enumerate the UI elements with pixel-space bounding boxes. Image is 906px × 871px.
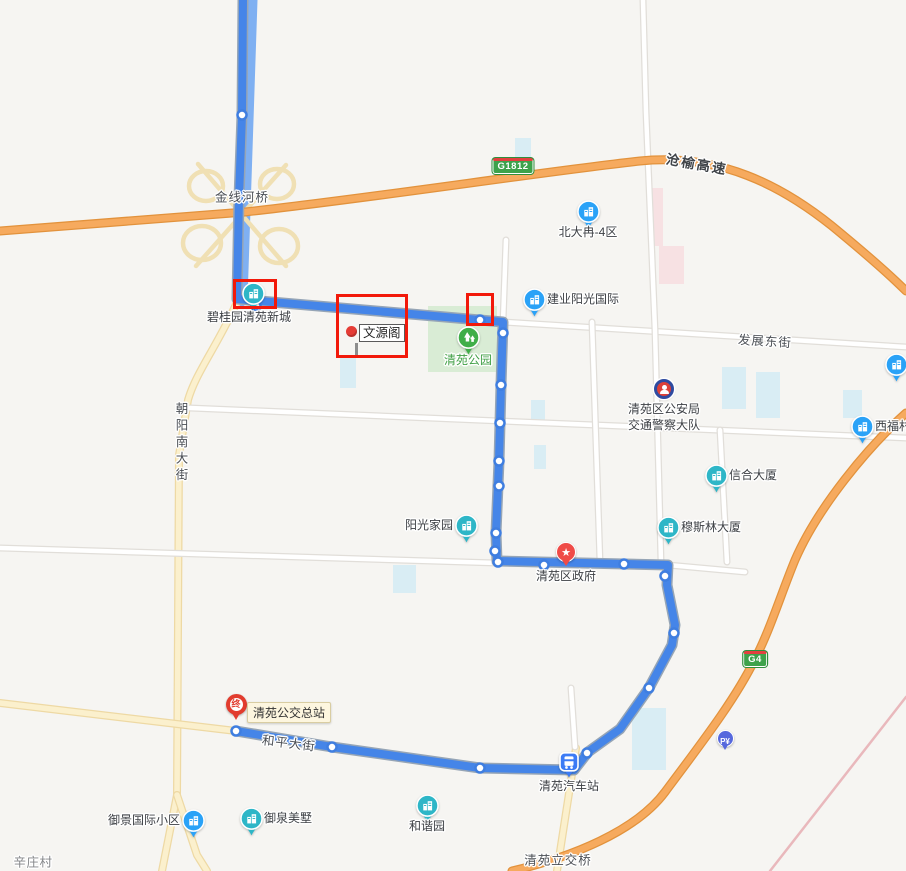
route-stop-dot[interactable] <box>496 419 505 428</box>
tree-pin-icon <box>457 326 480 355</box>
star-pin-icon: ★ <box>556 542 576 562</box>
route-stop-dot[interactable] <box>661 572 670 581</box>
pin-stem <box>355 343 358 355</box>
route-stop-dot[interactable] <box>670 629 679 638</box>
route-stop-dot[interactable] <box>328 743 337 752</box>
poi-label: 穆斯林大厦 <box>681 520 741 535</box>
poi-label: 信合大厦 <box>729 468 777 483</box>
route-stop-dot[interactable] <box>495 482 504 491</box>
route-stop-dot[interactable] <box>645 684 654 693</box>
street-label-chaoyang-south: 朝阳南大街 <box>172 402 191 485</box>
building-pin-icon <box>455 514 478 543</box>
poi-label: 和谐园 <box>409 819 445 834</box>
road-shield-g4: G4 <box>743 651 767 667</box>
water-8 <box>393 565 416 593</box>
water-7 <box>843 390 862 418</box>
water-9 <box>632 708 666 770</box>
water-1 <box>515 138 531 160</box>
cangyu-expressway <box>0 160 906 291</box>
route-stop-dot[interactable] <box>497 381 506 390</box>
route-stop-dot[interactable] <box>499 329 508 338</box>
chaoyang-south-street <box>177 300 238 795</box>
gov-street-west <box>0 548 497 563</box>
route-stop-dot[interactable] <box>232 727 241 736</box>
poi-label-line1: 清苑区公安局 <box>628 401 700 417</box>
railway <box>770 697 906 871</box>
parking-pin-icon: P¥ <box>717 730 734 747</box>
poi-label: 清苑汽车站 <box>539 779 599 794</box>
bus-station-icon <box>558 751 580 778</box>
poi-label: 碧桂园清苑新城 <box>207 310 291 325</box>
middle-road <box>190 408 906 438</box>
water-4 <box>534 445 546 469</box>
terminal-pin-icon: 终 <box>226 694 247 715</box>
poi-label-line2: 交通警察大队 <box>628 417 700 433</box>
street-label-qingyuan-interchange: 清苑立交桥 <box>524 850 592 869</box>
route-stop-dot[interactable] <box>492 529 501 538</box>
street-label-jinxianheqiao: 金线河桥 <box>215 187 269 206</box>
poi-label: 西福村 <box>875 419 906 434</box>
route-stop-dot[interactable] <box>476 316 485 325</box>
map-view: G1812 G4 金线河桥 沧榆高速 发展东街 朝阳南大街 和平大街 清苑立交桥… <box>0 0 906 871</box>
building-pin-icon <box>182 809 205 838</box>
building-pin-icon <box>523 288 546 317</box>
poi-label: 北大冉-4区 <box>559 225 618 240</box>
street-label-xinzhuang-village: 辛庄村 <box>13 852 52 871</box>
poi-label: 御泉美墅 <box>264 811 312 826</box>
street-label-fazhan-east: 发展东街 <box>737 329 792 351</box>
route-stop-dot[interactable] <box>238 111 247 120</box>
heping-street-west <box>0 703 236 731</box>
police-badge-icon <box>654 379 674 399</box>
chaoyang-branch-west <box>162 795 177 871</box>
parking-label: P¥ <box>720 737 730 746</box>
route-stop-dot[interactable] <box>583 749 592 758</box>
building-pin-icon <box>885 353 906 382</box>
cangyu-expressway <box>0 160 906 291</box>
hospital-2 <box>659 246 684 284</box>
star-icon: ★ <box>561 547 571 559</box>
route-stop-dot[interactable] <box>491 547 500 556</box>
building-pin-icon <box>657 516 680 545</box>
bus-route-line <box>236 0 675 770</box>
water-5 <box>722 367 746 409</box>
poi-label: 御景国际小区 <box>108 813 180 828</box>
chaoyang-south-street <box>177 300 238 795</box>
building-pin-icon <box>242 282 265 311</box>
building-pin-icon <box>705 464 728 493</box>
route-stop-dot[interactable] <box>620 560 629 569</box>
route-stop-dot[interactable] <box>494 558 503 567</box>
route-stop-dot[interactable] <box>476 764 485 773</box>
road-v650 <box>643 0 661 562</box>
water-6 <box>756 372 780 418</box>
bus-route-line <box>236 0 675 770</box>
map-canvas[interactable] <box>0 0 906 871</box>
poi-label: 阳光家园 <box>405 518 453 533</box>
water-2 <box>340 358 356 388</box>
poi-label: 清苑公园 <box>444 353 492 368</box>
road-shield-g1812: G1812 <box>492 158 533 174</box>
terminal-badge: 终 <box>230 698 243 711</box>
building-pin-icon <box>851 415 874 444</box>
route-stop-dot[interactable] <box>495 457 504 466</box>
building-pin-icon <box>240 807 263 836</box>
poi-label: 清苑公交总站 <box>247 702 331 723</box>
location-pin-icon <box>346 326 357 337</box>
poi-label: 建业阳光国际 <box>547 292 619 307</box>
poi-label: 文源阁 <box>359 324 405 342</box>
poi-label: 清苑区政府 <box>536 569 596 584</box>
